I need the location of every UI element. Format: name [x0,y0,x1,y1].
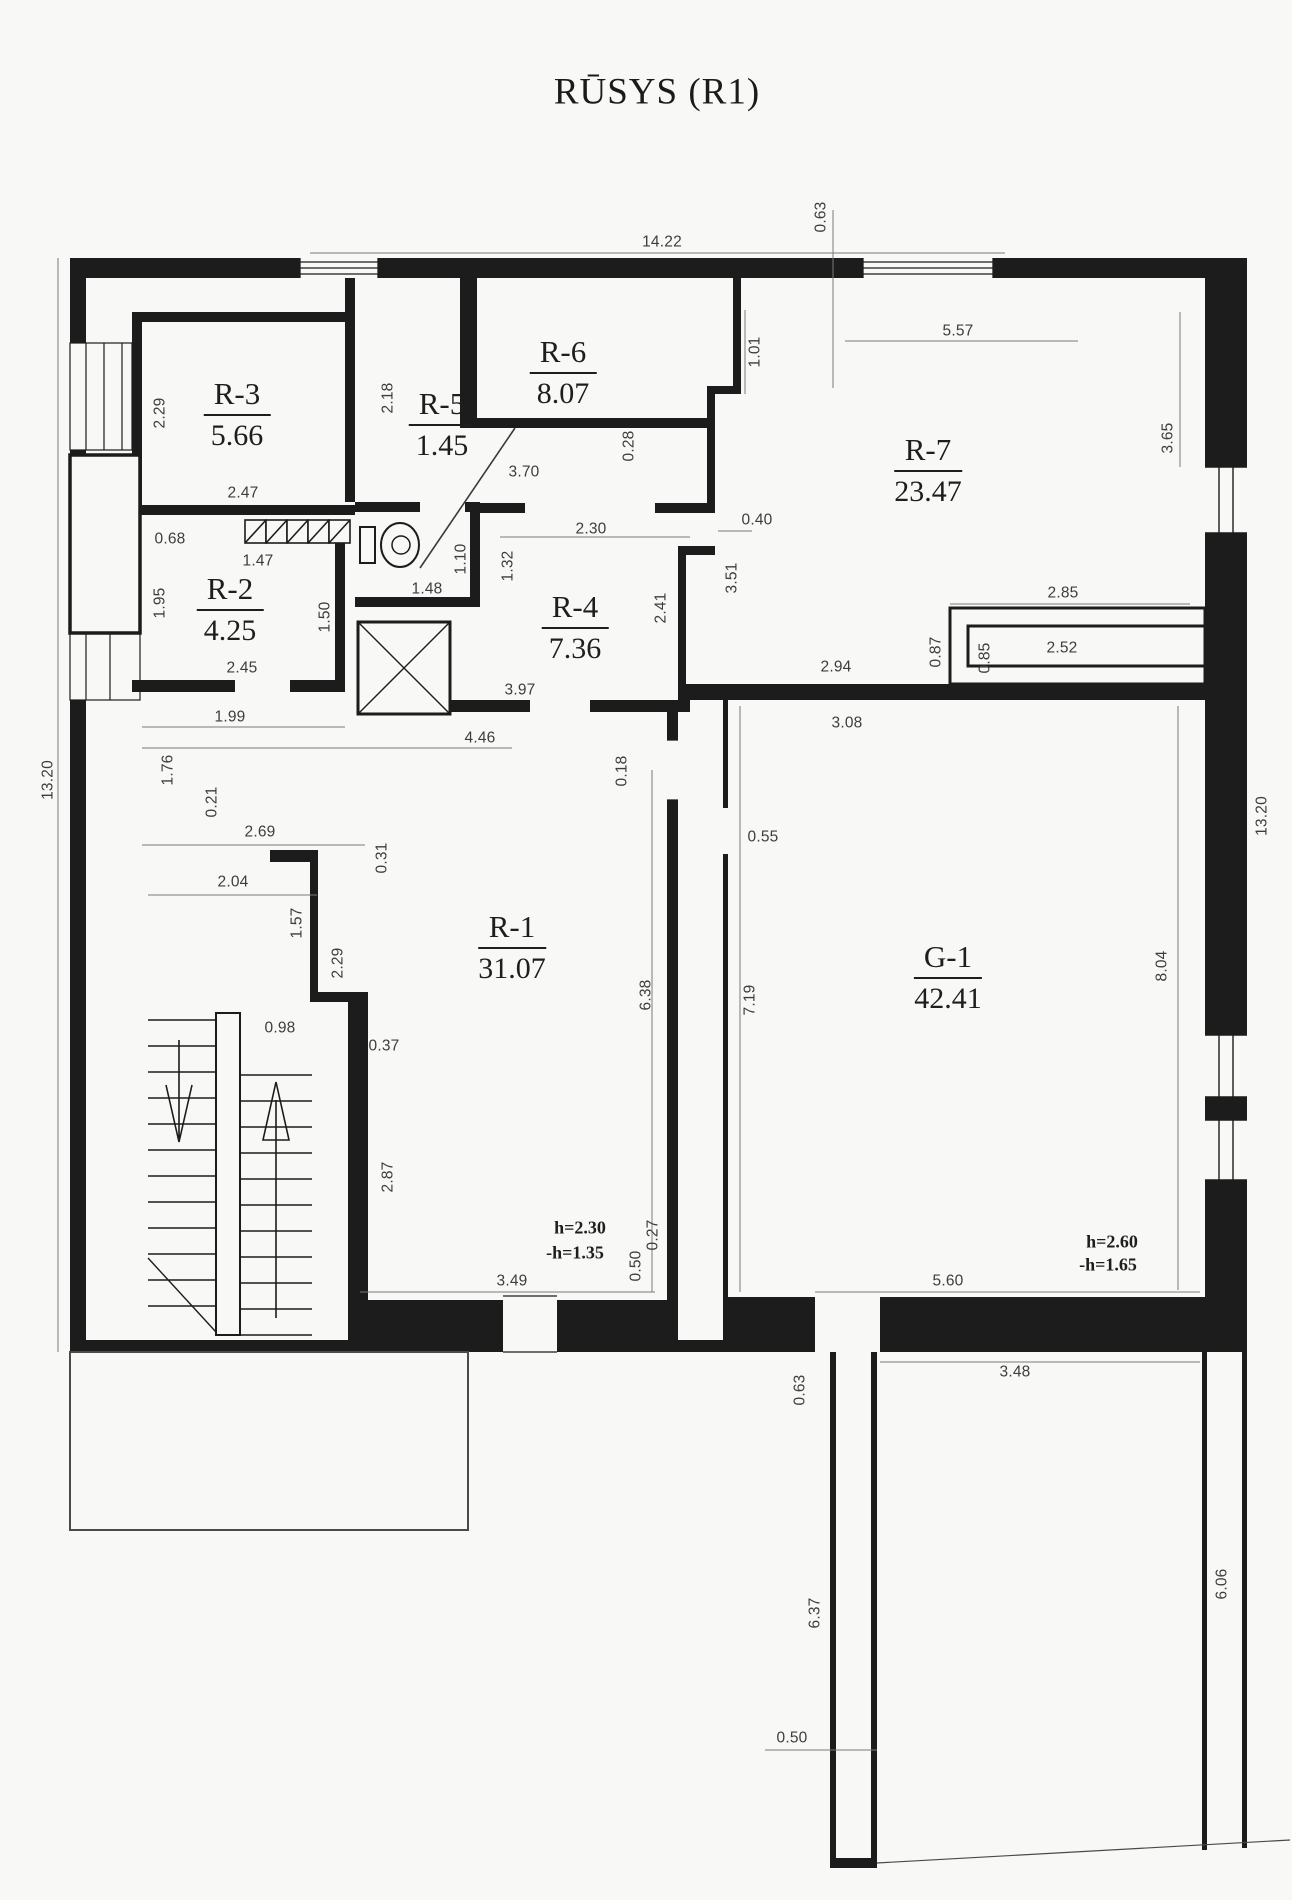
dim-label: 2.85 [1048,585,1079,601]
floor-plan-page: RŪSYS (R1) R-3 5.66 R-5 1.45 R-6 8.07 R-… [0,0,1292,1900]
room-name: G-1 [914,941,982,979]
stair-arrow-down [166,1040,192,1142]
dim-label: 0.50 [628,1251,644,1282]
room-area: 1.45 [409,426,476,463]
dim-label: 1.47 [243,553,274,569]
exterior-stair-strip [830,1352,877,1868]
dim-label: 0.18 [614,756,630,787]
dim-label: 3.65 [1160,423,1176,454]
room-label-r6: R-6 8.07 [530,336,597,411]
dim-label: 2.30 [576,521,607,537]
room-area: 31.07 [478,949,546,986]
chimney-block [70,455,140,633]
interior-walls [132,278,1205,1340]
room-name: R-6 [530,336,597,374]
dim-label: 4.46 [465,730,496,746]
shower-tray-icon [358,622,450,714]
dim-label: 6.06 [1214,1569,1230,1600]
dim-label: 2.18 [380,383,396,414]
room-label-r5: R-5 1.45 [409,388,476,463]
room-label-r1: R-1 31.07 [478,911,546,986]
dim-label: 2.87 [380,1162,396,1193]
dim-label: 2.52 [1047,640,1078,656]
room-name: R-4 [542,591,609,629]
dim-label: 2.69 [245,824,276,840]
dim-label: 6.37 [807,1598,823,1629]
dim-label: 2.45 [227,660,258,676]
dim-label: 1.48 [412,581,443,597]
dim-label: 0.63 [792,1375,808,1406]
room-label-g1: G-1 42.41 [914,941,982,1016]
dim-label: 2.29 [330,948,346,979]
dim-label: 1.76 [160,755,176,786]
dim-label: 1.50 [317,602,333,633]
dim-label: 2.47 [228,485,259,501]
dim-label: 8.04 [1154,951,1170,982]
dim-label: 1.57 [289,908,305,939]
dim-label: 1.95 [152,588,168,619]
room-label-r4: R-4 7.36 [542,591,609,666]
room-area: 8.07 [530,374,597,411]
room-label-r3: R-3 5.66 [204,378,271,453]
dim-label: 2.94 [821,659,852,675]
height-note: -h=1.35 [546,1243,604,1264]
dim-label: 0.68 [155,531,186,547]
dim-label: 2.29 [152,398,168,429]
dim-label: 0.55 [748,829,779,845]
dim-label: 3.70 [509,464,540,480]
dim-label: 2.04 [218,874,249,890]
right-extension-wall [877,1352,1290,1863]
dim-label: 0.63 [813,202,829,233]
height-note: h=2.30 [554,1218,606,1239]
hatched-wall [245,520,350,543]
room-area: 5.66 [204,416,271,453]
dim-label: 0.87 [928,637,944,668]
height-note: -h=1.65 [1079,1255,1137,1276]
staircase [148,1013,312,1335]
dim-label: 1.01 [747,337,763,368]
room-area: 23.47 [894,472,962,509]
toilet-icon [360,523,419,567]
dim-label: 3.97 [505,682,536,698]
dim-label: 0.28 [621,431,637,462]
dim-label: 1.10 [453,544,469,575]
room-name: R-7 [894,434,962,472]
dim-label: 5.60 [933,1273,964,1289]
dim-label: 13.20 [40,760,56,800]
door-openings [503,740,730,1356]
dim-label: 5.57 [943,323,974,339]
dim-label: 0.37 [369,1038,400,1054]
room-name: R-5 [409,388,476,426]
dim-label: 0.98 [265,1020,296,1036]
room-label-r7: R-7 23.47 [894,434,962,509]
dim-label: 7.19 [742,985,758,1016]
dim-label: 2.41 [653,593,669,624]
dim-label: 3.49 [497,1273,528,1289]
floorplan-drawing [0,0,1292,1900]
dim-label: 0.27 [645,1220,661,1251]
dim-label: 14.22 [642,234,682,250]
room-area: 4.25 [197,611,264,648]
dim-label: 3.51 [724,563,740,594]
terrace-outline [70,1352,468,1530]
dim-label: 3.08 [832,715,863,731]
dim-label: 1.99 [215,709,246,725]
dim-label: 0.85 [977,643,993,674]
dim-label: 0.21 [204,787,220,818]
dim-label: 0.31 [374,843,390,874]
dim-label: 1.32 [500,551,516,582]
room-name: R-2 [197,573,264,611]
room-name: R-1 [478,911,546,949]
dim-label: 0.40 [742,512,773,528]
dim-label: 3.48 [1000,1364,1031,1380]
room-area: 42.41 [914,979,982,1016]
room-area: 7.36 [542,629,609,666]
room-label-r2: R-2 4.25 [197,573,264,648]
room-name: R-3 [204,378,271,416]
dim-label: 0.50 [777,1730,808,1746]
page-title: RŪSYS (R1) [554,71,760,114]
dim-label: 13.20 [1254,796,1270,836]
height-note: h=2.60 [1086,1232,1138,1253]
dim-label: 6.38 [638,980,654,1011]
